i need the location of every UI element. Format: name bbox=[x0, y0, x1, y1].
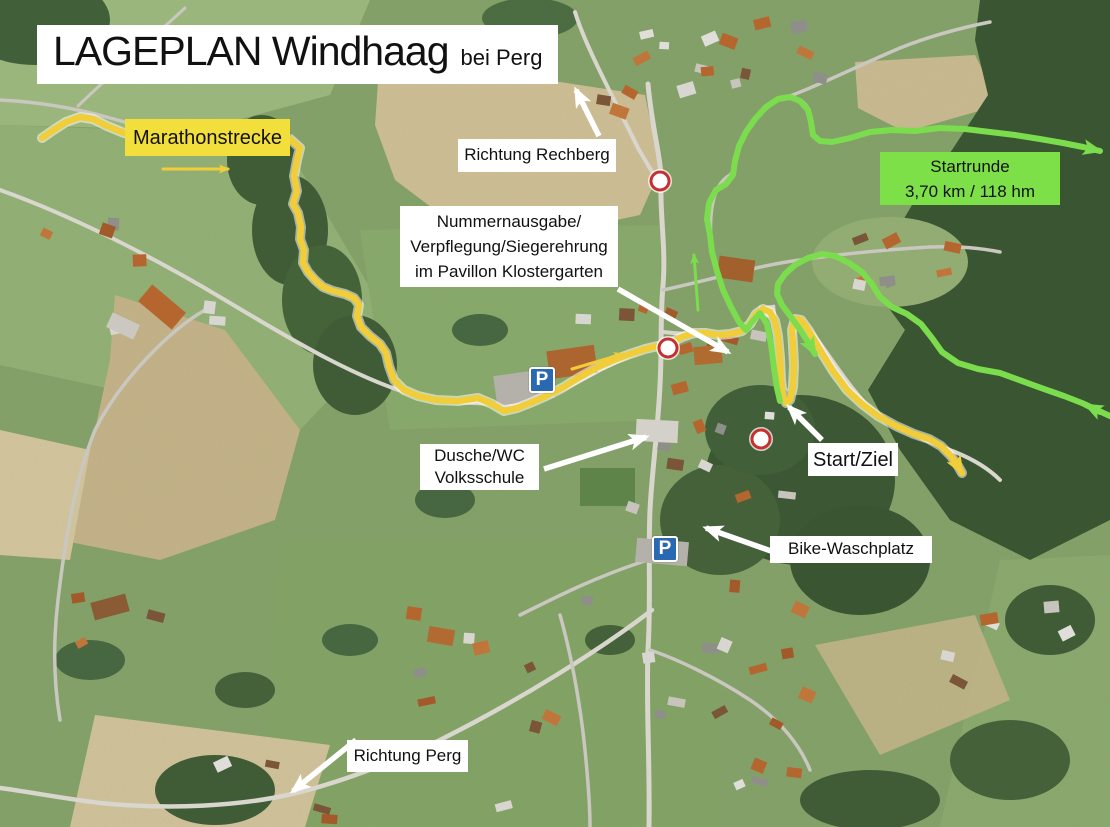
house bbox=[203, 300, 216, 314]
bike-waschplatz-text: Bike-Waschplatz bbox=[788, 538, 914, 560]
startrunde-label: Startrunde 3,70 km / 118 hm bbox=[880, 152, 1060, 205]
house bbox=[790, 19, 808, 34]
dusche-line2: Volksschule bbox=[435, 467, 525, 489]
bike-waschplatz-label: Bike-Waschplatz bbox=[770, 536, 932, 563]
nummernausgabe-line2: Verpflegung/Siegerehrung bbox=[410, 234, 608, 259]
map-title-main: LAGEPLAN Windhaag bbox=[53, 25, 449, 78]
house bbox=[701, 66, 715, 76]
road-closure-marker bbox=[658, 338, 679, 359]
house bbox=[786, 767, 802, 778]
richtung-rechberg-label: Richtung Rechberg bbox=[458, 139, 616, 172]
richtung-perg-label: Richtung Perg bbox=[347, 740, 468, 772]
house bbox=[659, 42, 669, 50]
house bbox=[1043, 601, 1059, 614]
house bbox=[781, 647, 794, 659]
house bbox=[209, 316, 226, 326]
house bbox=[642, 651, 656, 664]
road-closure-marker bbox=[650, 171, 671, 192]
dusche-wc-label: Dusche/WC Volksschule bbox=[420, 444, 539, 490]
startrunde-line1: Startrunde bbox=[930, 154, 1009, 179]
richtung-rechberg-text: Richtung Rechberg bbox=[464, 144, 610, 166]
house bbox=[406, 606, 422, 621]
house bbox=[581, 595, 594, 606]
start-ziel-text: Start/Ziel bbox=[813, 447, 893, 473]
start-ziel-label: Start/Ziel bbox=[808, 443, 898, 476]
lageplan-map: PP LAGEPLAN Windhaag bei Perg Marathonst… bbox=[0, 0, 1110, 827]
house bbox=[654, 710, 666, 719]
house bbox=[765, 412, 775, 420]
house bbox=[729, 579, 740, 592]
dusche-line1: Dusche/WC bbox=[434, 445, 525, 467]
map-title-suffix: bei Perg bbox=[461, 44, 543, 73]
marathonstrecke-label: Marathonstrecke bbox=[125, 119, 290, 156]
marathonstrecke-label-text: Marathonstrecke bbox=[133, 125, 282, 151]
house bbox=[619, 308, 635, 321]
parking-sign: P bbox=[652, 536, 678, 562]
nummernausgabe-line3: im Pavillon Klostergarten bbox=[415, 259, 603, 284]
house bbox=[71, 592, 85, 603]
house bbox=[321, 814, 337, 824]
nummernausgabe-label: Nummernausgabe/ Verpflegung/Siegerehrung… bbox=[400, 206, 618, 287]
parking-sign: P bbox=[529, 367, 555, 393]
richtung-perg-text: Richtung Perg bbox=[354, 745, 462, 767]
house bbox=[132, 254, 146, 267]
house bbox=[463, 633, 475, 645]
road-closure-marker bbox=[751, 429, 772, 450]
map-title: LAGEPLAN Windhaag bei Perg bbox=[37, 25, 558, 84]
nummernausgabe-line1: Nummernausgabe/ bbox=[437, 209, 582, 234]
startrunde-line2: 3,70 km / 118 hm bbox=[905, 179, 1035, 204]
house bbox=[575, 314, 591, 325]
